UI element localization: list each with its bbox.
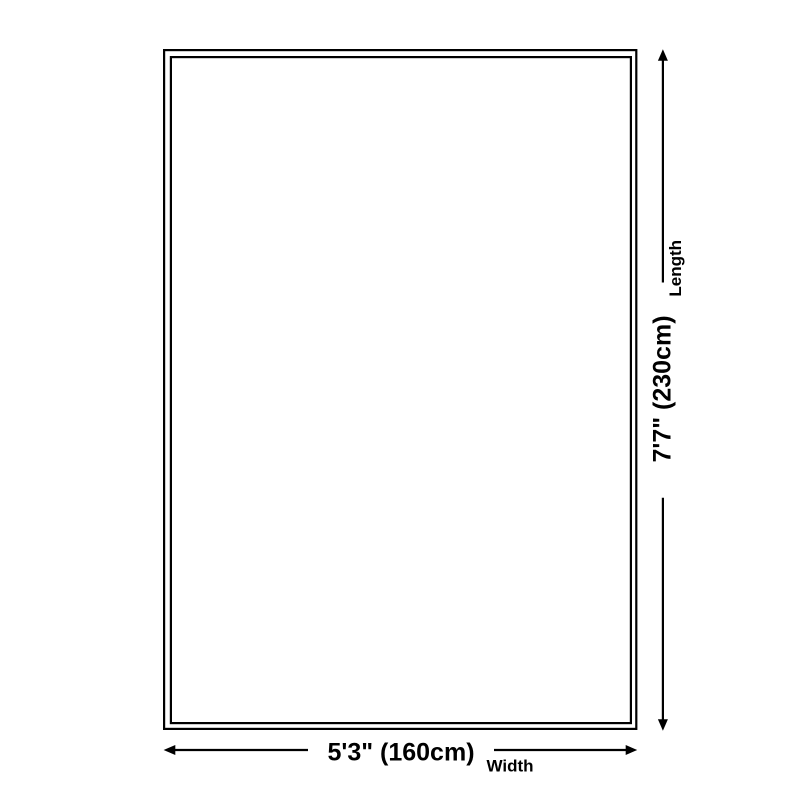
svg-text:Length: Length [666,240,685,297]
svg-text:5'3" (160cm): 5'3" (160cm) [327,739,474,767]
svg-text:Width: Width [486,756,533,775]
svg-text:7'7" (230cm): 7'7" (230cm) [649,315,677,462]
